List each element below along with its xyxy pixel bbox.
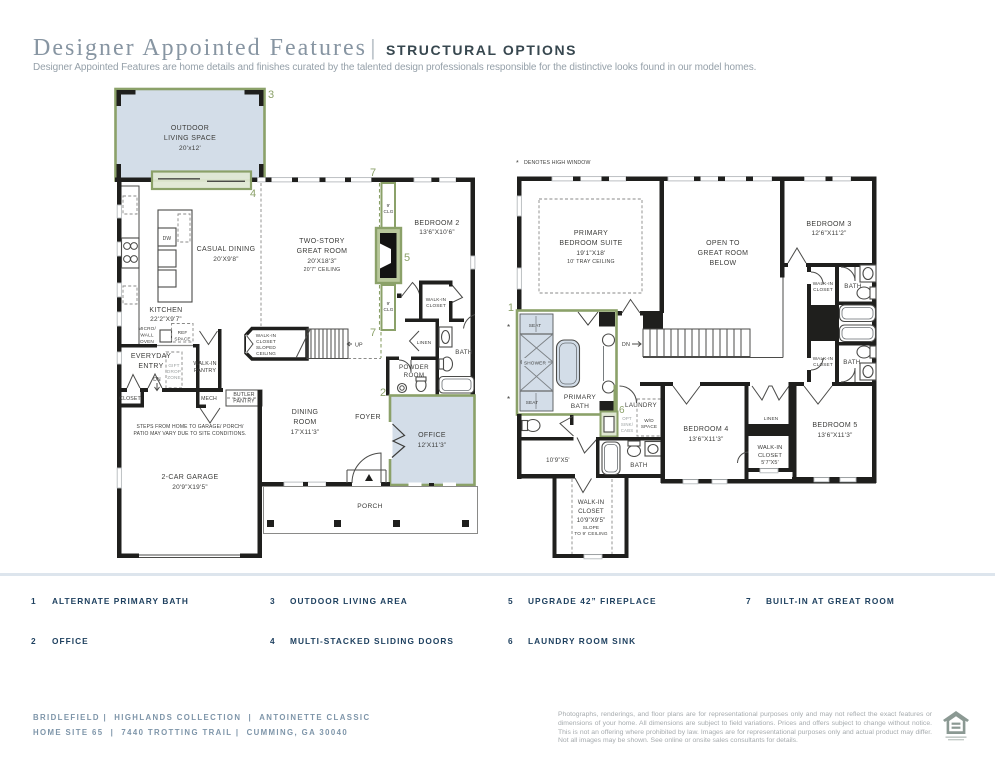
svg-text:WALK-IN: WALK-IN — [758, 445, 783, 451]
svg-text:20'x12': 20'x12' — [179, 145, 201, 152]
svg-text:ENTRY: ENTRY — [138, 363, 163, 370]
svg-text:12'X11'3”: 12'X11'3” — [418, 442, 447, 449]
svg-text:*: * — [507, 395, 510, 404]
svg-text:LAUNDRY: LAUNDRY — [625, 402, 657, 409]
svg-text:10'9”X9'5”: 10'9”X9'5” — [577, 518, 605, 524]
svg-text:12'6”X11'2”: 12'6”X11'2” — [811, 230, 846, 237]
svg-text:*: * — [516, 160, 519, 167]
svg-text:WALK-IN: WALK-IN — [813, 356, 833, 361]
svg-text:KITCHEN: KITCHEN — [149, 307, 182, 314]
svg-text:20'X9'8”: 20'X9'8” — [213, 256, 238, 263]
svg-text:5: 5 — [404, 252, 410, 264]
svg-text:PRIMARY: PRIMARY — [564, 394, 597, 401]
svg-text:MICRO/: MICRO/ — [138, 326, 156, 331]
svg-text:PRIMARY: PRIMARY — [574, 230, 608, 237]
svg-text:CABS: CABS — [621, 428, 634, 433]
svg-text:WALK-IN: WALK-IN — [256, 333, 276, 338]
svg-text:WALK-IN: WALK-IN — [578, 499, 605, 506]
svg-text:CASUAL DINING: CASUAL DINING — [197, 246, 256, 253]
svg-text:TO 9' CEILING: TO 9' CEILING — [574, 531, 607, 536]
svg-text:9': 9' — [387, 203, 391, 208]
svg-text:CEILING: CEILING — [256, 351, 276, 356]
svg-text:10' TRAY CEILING: 10' TRAY CEILING — [567, 259, 615, 265]
svg-text:CLG: CLG — [383, 209, 393, 214]
svg-text:OPEN TO: OPEN TO — [706, 240, 740, 247]
svg-text:PATIO MAY VARY DUE TO SITE CON: PATIO MAY VARY DUE TO SITE CONDITIONS. — [134, 431, 247, 437]
svg-text:BATH: BATH — [571, 403, 590, 410]
svg-text:BEDROOM 3: BEDROOM 3 — [806, 221, 851, 228]
svg-text:W/D: W/D — [644, 418, 654, 423]
svg-text:LINEN: LINEN — [417, 340, 432, 345]
svg-text:SPACE: SPACE — [641, 424, 657, 429]
svg-text:REF: REF — [178, 330, 188, 335]
svg-text:DROP: DROP — [167, 369, 181, 374]
svg-text:CLOSET: CLOSET — [813, 287, 833, 292]
svg-text:2: 2 — [380, 387, 386, 399]
svg-text:CLOSET: CLOSET — [119, 396, 141, 402]
svg-text:SLOPE: SLOPE — [583, 525, 599, 530]
svg-text:CLOSET: CLOSET — [426, 303, 446, 308]
svg-text:DN: DN — [622, 342, 630, 348]
svg-text:2-CAR GARAGE: 2-CAR GARAGE — [161, 474, 218, 481]
svg-text:POWDER: POWDER — [399, 364, 429, 371]
svg-text:WALK-IN: WALK-IN — [426, 297, 446, 302]
svg-text:WALL: WALL — [140, 333, 153, 338]
svg-text:20'9”X19'5”: 20'9”X19'5” — [172, 484, 208, 491]
svg-text:CLG: CLG — [383, 307, 393, 312]
svg-text:BEDROOM 4: BEDROOM 4 — [683, 426, 728, 433]
svg-text:CLOSET: CLOSET — [758, 453, 782, 459]
svg-text:BATH: BATH — [455, 349, 472, 356]
svg-text:9': 9' — [387, 301, 391, 306]
svg-text:BEDROOM 2: BEDROOM 2 — [414, 220, 459, 227]
svg-text:SPACE: SPACE — [174, 337, 190, 342]
svg-text:LIVING SPACE: LIVING SPACE — [164, 135, 216, 142]
svg-text:17'X11'3”: 17'X11'3” — [291, 429, 320, 436]
svg-text:SINK/: SINK/ — [621, 422, 634, 427]
svg-text:SLOPED: SLOPED — [256, 345, 276, 350]
svg-text:BUTLER: BUTLER — [233, 392, 254, 398]
svg-text:BEDROOM SUITE: BEDROOM SUITE — [559, 240, 622, 247]
svg-text:LINEN: LINEN — [764, 416, 779, 421]
svg-text:7: 7 — [370, 167, 376, 179]
svg-text:20'7” CEILING: 20'7” CEILING — [304, 267, 341, 273]
svg-text:STEPS FROM HOME TO GARAGE/ POR: STEPS FROM HOME TO GARAGE/ PORCH/ — [136, 424, 243, 430]
svg-text:CLOSET: CLOSET — [256, 339, 276, 344]
svg-text:MECH: MECH — [201, 396, 217, 402]
svg-text:CLOSET: CLOSET — [813, 362, 833, 367]
svg-text:FOYER: FOYER — [355, 414, 381, 421]
svg-text:ZONE: ZONE — [167, 375, 181, 380]
svg-text:10'9”X5': 10'9”X5' — [546, 458, 570, 464]
svg-text:WALK-IN: WALK-IN — [813, 281, 833, 286]
svg-text:ROOM: ROOM — [293, 419, 316, 426]
svg-text:GIFT: GIFT — [168, 363, 179, 368]
svg-text:5'7”X5': 5'7”X5' — [761, 460, 779, 466]
svg-text:PORCH: PORCH — [357, 503, 383, 510]
svg-text:13'6”X10'6”: 13'6”X10'6” — [419, 229, 455, 236]
svg-text:WALK-IN: WALK-IN — [193, 361, 216, 367]
svg-text:DENOTES HIGH WINDOW: DENOTES HIGH WINDOW — [524, 160, 591, 166]
svg-text:1: 1 — [508, 302, 514, 314]
svg-text:BATH: BATH — [630, 462, 647, 469]
svg-text:OFFICE: OFFICE — [418, 432, 446, 439]
svg-text:4: 4 — [250, 188, 256, 200]
svg-text:20'X18'3”: 20'X18'3” — [307, 258, 336, 265]
svg-text:EVERYDAY: EVERYDAY — [131, 353, 171, 360]
svg-text:GREAT ROOM: GREAT ROOM — [698, 250, 749, 257]
svg-text:OPT: OPT — [622, 416, 632, 421]
svg-text:*: * — [507, 323, 510, 332]
svg-text:CLOSET: CLOSET — [578, 508, 604, 515]
svg-text:OVEN: OVEN — [140, 339, 154, 344]
svg-text:GREAT ROOM: GREAT ROOM — [297, 248, 348, 255]
svg-text:3: 3 — [268, 89, 274, 101]
svg-text:TWO-STORY: TWO-STORY — [299, 238, 345, 245]
svg-text:PANTRY: PANTRY — [194, 368, 217, 374]
svg-text:19'1”X18': 19'1”X18' — [576, 250, 605, 257]
svg-text:PANTRY: PANTRY — [233, 399, 255, 405]
svg-text:BEDROOM 5: BEDROOM 5 — [812, 422, 857, 429]
svg-text:BATH: BATH — [843, 359, 860, 366]
svg-text:UP: UP — [355, 343, 363, 349]
svg-text:22'2”X9'7”: 22'2”X9'7” — [150, 316, 182, 323]
svg-text:SHOWER: SHOWER — [524, 361, 546, 366]
svg-text:SEAT: SEAT — [529, 323, 542, 328]
svg-text:OUTDOOR: OUTDOOR — [171, 125, 209, 132]
svg-text:DW: DW — [163, 236, 172, 242]
svg-text:13'6”X11'3”: 13'6”X11'3” — [688, 436, 723, 443]
svg-text:DINING: DINING — [292, 409, 319, 416]
svg-text:7: 7 — [370, 327, 376, 339]
svg-text:BELOW: BELOW — [709, 260, 736, 267]
svg-text:13'6”X11'3”: 13'6”X11'3” — [817, 432, 852, 439]
